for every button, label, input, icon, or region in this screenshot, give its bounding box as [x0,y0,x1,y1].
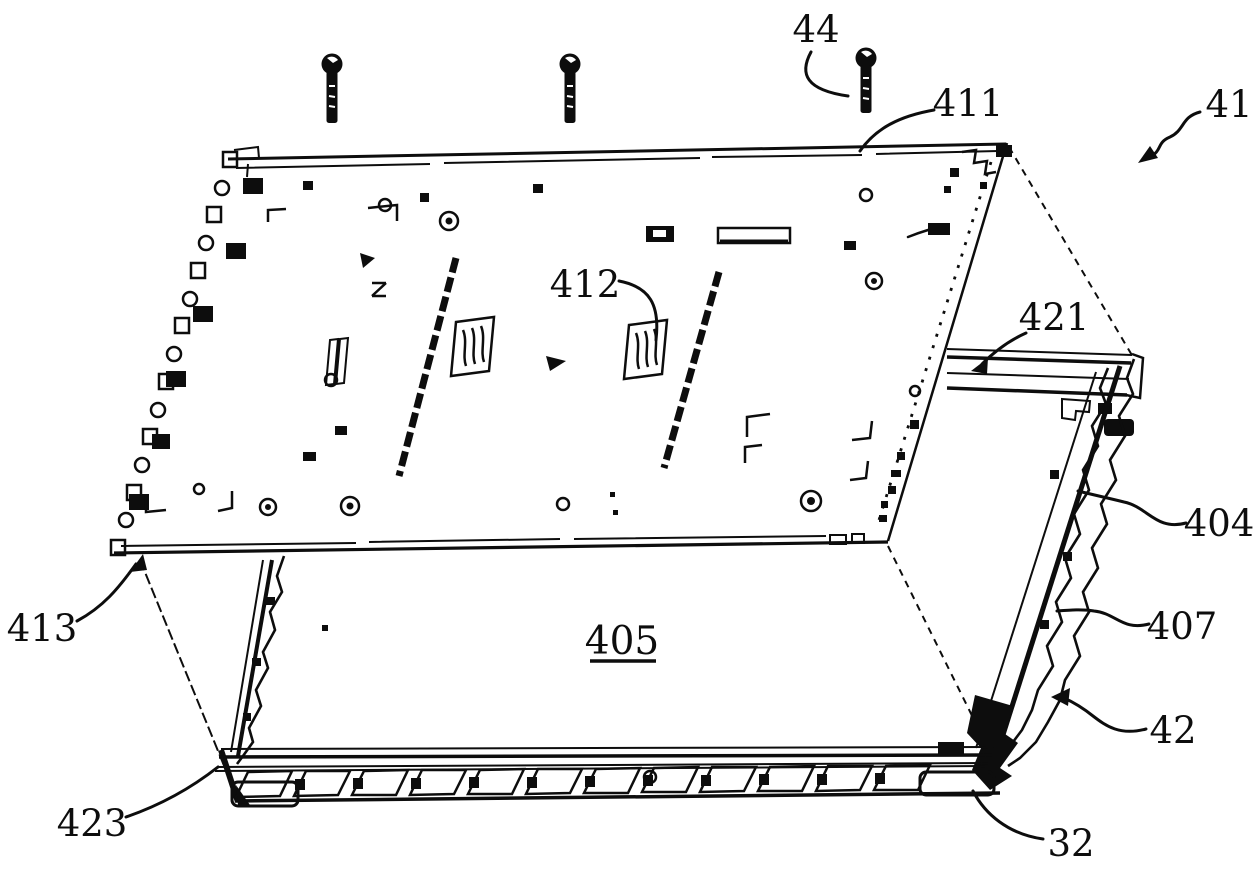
ref-label-412: 412 [550,263,621,306]
leader-42 [1064,698,1146,731]
arrowhead-413 [130,554,147,572]
floor-mark [322,625,328,631]
figure-canvas: 44 411 41 412 421 404 407 413 42 423 32 … [0,0,1259,874]
box-front-left-edge [140,560,225,768]
top-cover-panel [111,143,1012,555]
leader-44 [806,52,848,96]
leader-32 [973,791,1043,839]
ref-label-42: 42 [1149,709,1196,752]
screw-icon [560,54,581,124]
ref-label-404: 404 [1184,502,1255,545]
ref-label-405: 405 [585,619,659,664]
arrowhead-421 [971,358,988,374]
patent-figure: 44 411 41 412 421 404 407 413 42 423 32 … [0,0,1259,874]
arrowhead-41 [1138,146,1158,163]
leader-404 [1078,491,1186,525]
leader-423 [126,767,218,817]
ref-label-411: 411 [933,82,1004,125]
screw-icon [322,54,343,124]
ref-label-41: 41 [1205,83,1252,126]
leader-413 [77,564,136,621]
box-left-side-rail [231,556,284,764]
screw-icon [856,48,877,114]
ref-label-413: 413 [7,607,78,650]
ref-label-44: 44 [792,8,839,51]
leader-407 [1057,610,1149,626]
ref-label-421: 421 [1019,296,1090,339]
leader-41 [1150,112,1200,157]
ref-label-32: 32 [1047,822,1094,865]
ref-label-407: 407 [1147,605,1218,648]
ref-label-423: 423 [57,802,128,845]
ref-label-405-group: 405 [585,619,659,664]
arrowhead-42 [1051,688,1070,706]
box-bottom-rail [215,742,1000,802]
